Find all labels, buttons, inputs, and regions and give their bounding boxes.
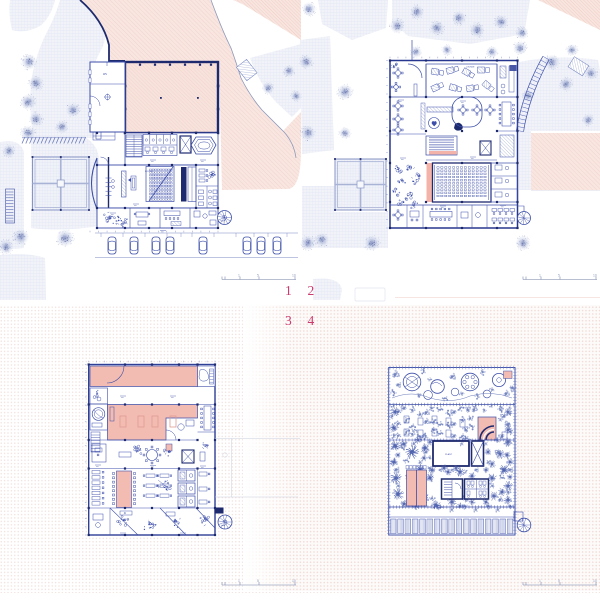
svg-text:10: 10 <box>593 579 597 583</box>
svg-text:5: 5 <box>257 579 259 583</box>
svg-text:4: 4 <box>308 313 315 328</box>
svg-text:3: 3 <box>285 313 292 328</box>
svg-text:1: 1 <box>285 283 292 298</box>
svg-text:5: 5 <box>257 273 259 277</box>
svg-text:1: 1 <box>238 273 240 277</box>
svg-text:5: 5 <box>558 579 560 583</box>
svg-text:WS: WS <box>103 73 107 76</box>
svg-text:2: 2 <box>308 283 315 298</box>
svg-text:PLANT: PLANT <box>445 453 453 456</box>
svg-text:5: 5 <box>558 273 560 277</box>
svg-text:LOUNGE: LOUNGE <box>466 67 475 69</box>
svg-text:1: 1 <box>539 273 541 277</box>
svg-text:10: 10 <box>292 579 296 583</box>
svg-text:10: 10 <box>292 273 296 277</box>
svg-text:1: 1 <box>238 579 240 583</box>
svg-text:1: 1 <box>539 579 541 583</box>
svg-text:10: 10 <box>593 273 597 277</box>
